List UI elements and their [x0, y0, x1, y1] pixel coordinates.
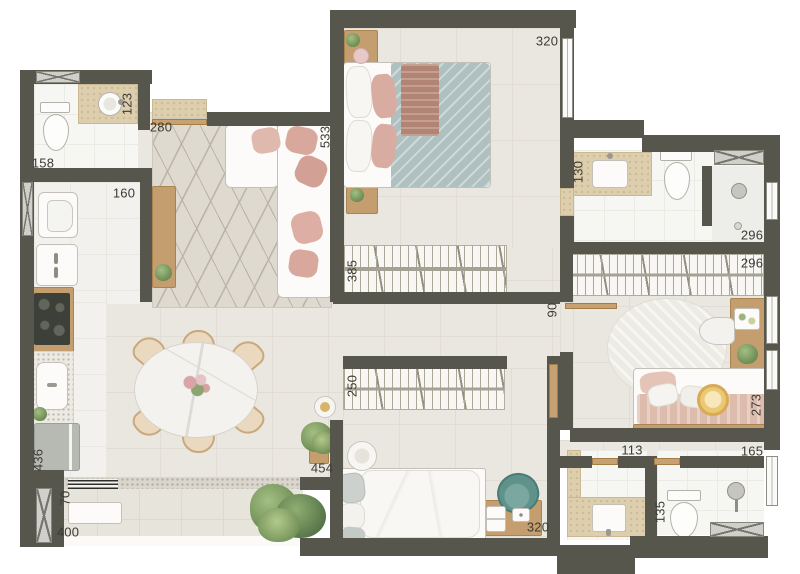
master-closet — [343, 245, 507, 293]
window — [562, 38, 573, 118]
wall — [560, 352, 573, 430]
kids-chair — [699, 317, 735, 345]
dim-master-width: 320 — [536, 34, 558, 49]
laundry-tank — [38, 192, 78, 238]
shower-glass — [710, 522, 764, 537]
bath2-shower-head-icon — [727, 482, 745, 500]
window — [766, 296, 778, 344]
dim-kitchen-width: 160 — [113, 186, 135, 201]
side-table-tray — [320, 402, 330, 412]
dim-living-width: 454 — [311, 461, 333, 476]
window — [766, 456, 778, 506]
dim-kids-bed-wall: 273 — [749, 394, 764, 416]
dim-entry-width: 280 — [150, 120, 172, 135]
dim-hall-width: 90 — [545, 303, 560, 318]
bath2-shower-arm — [735, 500, 738, 512]
dim-bed2-closet: 250 — [345, 375, 360, 397]
wall — [20, 70, 34, 470]
wall — [330, 10, 576, 28]
wall — [630, 536, 768, 558]
dim-bath-social-width: 113 — [621, 443, 642, 458]
wall — [560, 120, 644, 138]
dim-master-closet: 385 — [345, 260, 360, 282]
fridge-handle — [54, 267, 58, 278]
dim-lavabo-width: 158 — [32, 156, 54, 171]
bath2-toilet-tank — [667, 490, 701, 501]
bedroom2-closet — [343, 368, 505, 410]
wall — [207, 112, 333, 126]
laptop — [486, 506, 506, 532]
console-plant — [155, 264, 172, 281]
kitchen-plant — [33, 407, 47, 421]
window — [766, 350, 778, 390]
shower-glass — [714, 150, 764, 165]
window — [766, 182, 778, 220]
door-leaf — [592, 458, 618, 465]
ensuite-sink — [592, 160, 628, 188]
ensuite-faucet-icon — [607, 153, 613, 159]
dim-bath-social-length: 135 — [653, 501, 668, 523]
dim-kitchen-run: 436 — [31, 449, 46, 471]
pillar-hatch — [36, 488, 52, 543]
bath-social-faucet-icon — [606, 529, 611, 536]
window-hatch — [36, 71, 80, 83]
dim-ensuite-vanity: 130 — [571, 161, 586, 183]
lion-plush — [697, 384, 729, 416]
wall — [138, 70, 150, 130]
nightstand-plant — [346, 33, 360, 47]
table-flowers — [181, 372, 211, 398]
balcony-bench — [68, 502, 122, 524]
wall — [333, 292, 560, 304]
wall — [557, 545, 635, 574]
door-leaf — [654, 458, 680, 465]
wall — [560, 456, 592, 468]
kids-desk-paper — [734, 308, 760, 330]
floor-grate — [68, 479, 118, 489]
master-pillow-white — [345, 65, 374, 118]
nightstand-plant — [350, 188, 364, 202]
bath-social-sink — [592, 504, 626, 532]
shower-head-icon — [731, 183, 747, 199]
dim-bath2-width: 165 — [741, 444, 763, 459]
door-leaf — [565, 303, 617, 309]
dim-lavabo-vanity: 123 — [120, 93, 135, 115]
balcony-plant — [258, 508, 300, 542]
wall — [560, 254, 573, 302]
wall — [570, 428, 766, 442]
ensuite-door-threshold — [560, 188, 574, 216]
wall — [330, 10, 344, 302]
refrigerator — [36, 244, 78, 286]
kids-closet — [568, 254, 764, 296]
dim-living-length: 533 — [318, 126, 333, 148]
wall — [343, 356, 507, 369]
kids-door-floor — [560, 302, 573, 354]
kitchen-sink — [36, 362, 68, 410]
sofa-pillow — [287, 248, 319, 279]
dim-balcony-length: 400 — [57, 525, 79, 540]
bed2-duvet — [360, 470, 480, 538]
dim-balcony-pillar: 70 — [58, 491, 73, 506]
wall — [140, 182, 152, 302]
floor-plan: 320 123 280 533 158 160 385 130 296 296 … — [0, 0, 800, 574]
master-pillow-white — [345, 119, 374, 172]
nightstand-lamp — [353, 48, 369, 64]
dim-ensuite-length: 296 — [741, 228, 763, 243]
dim-kids-closet: 296 — [741, 256, 763, 271]
wall — [702, 166, 712, 226]
faucet-icon — [47, 383, 57, 387]
bed2-round-table — [347, 441, 377, 471]
wall — [645, 456, 657, 540]
wall — [300, 477, 343, 490]
kids-desk-plant — [737, 344, 758, 364]
lavabo-toilet-tank — [40, 102, 70, 113]
wall — [560, 242, 766, 254]
tank-basin — [47, 200, 73, 232]
wall — [300, 538, 560, 556]
cooktop — [34, 293, 70, 345]
fridge-handle — [54, 253, 58, 264]
dim-bed2-wall: 320 — [527, 520, 549, 535]
shaft-hatch — [22, 182, 33, 236]
master-throw — [401, 64, 439, 136]
door-leaf — [549, 364, 558, 418]
